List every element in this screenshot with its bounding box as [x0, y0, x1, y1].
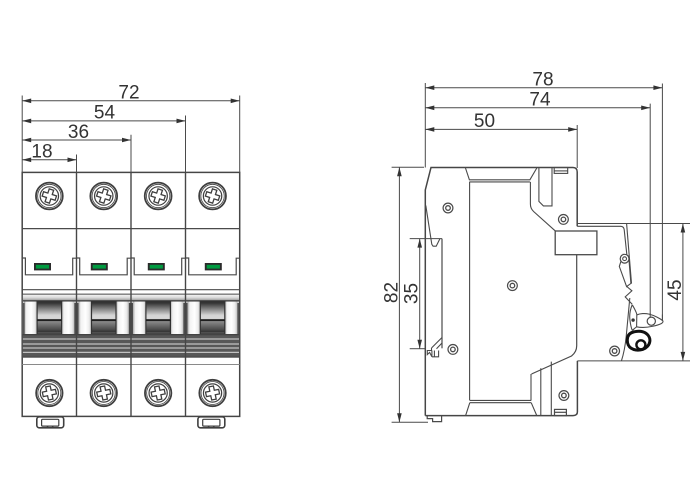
- svg-text:74: 74: [529, 90, 551, 111]
- svg-text:18: 18: [31, 142, 52, 163]
- svg-text:72: 72: [118, 83, 139, 104]
- svg-text:36: 36: [68, 122, 89, 143]
- svg-text:50: 50: [474, 111, 495, 132]
- svg-text:54: 54: [94, 103, 116, 124]
- svg-text:82: 82: [382, 282, 403, 303]
- svg-text:78: 78: [532, 70, 553, 91]
- svg-text:45: 45: [665, 279, 686, 300]
- svg-text:35: 35: [402, 283, 423, 304]
